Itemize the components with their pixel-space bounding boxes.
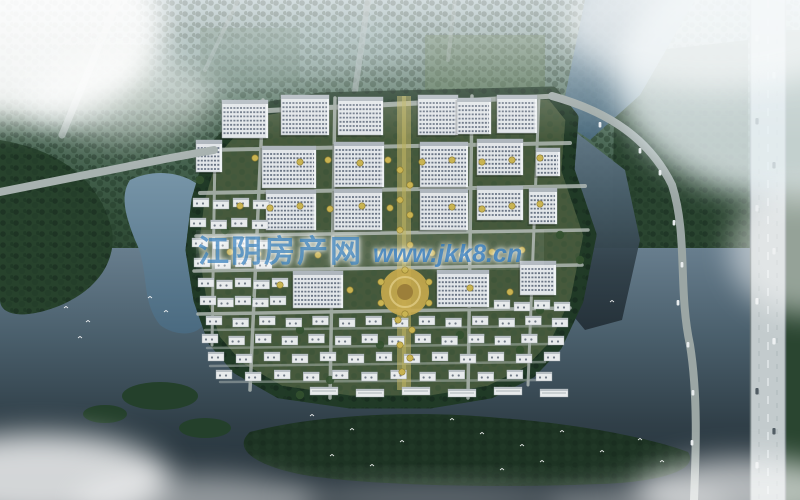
golden-tree	[537, 155, 543, 161]
low-flat-building	[448, 389, 476, 397]
golden-tree	[397, 167, 403, 173]
car	[691, 440, 694, 446]
residential-tower	[419, 142, 469, 189]
golden-tree	[267, 205, 273, 211]
golden-tree	[327, 206, 333, 212]
villa-rowhouse	[208, 352, 224, 361]
villa-rowhouse	[274, 370, 290, 379]
green-tree	[296, 391, 304, 399]
golden-tree	[297, 159, 303, 165]
villa-rowhouse	[468, 334, 484, 343]
villa-rowhouse	[303, 372, 319, 381]
villa-rowhouse	[554, 302, 570, 311]
villa-rowhouse	[548, 336, 564, 345]
car	[681, 262, 684, 268]
villa-rowhouse	[200, 296, 216, 305]
golden-tree	[385, 157, 391, 163]
villa-rowhouse	[507, 370, 523, 379]
golden-tree	[426, 300, 432, 306]
green-tree	[576, 256, 584, 264]
villa-rowhouse	[348, 354, 364, 363]
golden-tree	[347, 287, 353, 293]
villa-rowhouse	[213, 200, 229, 209]
golden-tree	[397, 342, 403, 348]
plaza-emblem	[397, 284, 413, 300]
small-island	[179, 418, 231, 438]
villa-rowhouse	[312, 316, 328, 325]
golden-tree	[479, 159, 485, 165]
car	[692, 390, 695, 396]
golden-tree	[378, 300, 384, 306]
golden-tree	[325, 157, 331, 163]
villa-rowhouse	[521, 334, 537, 343]
residential-tower	[292, 271, 344, 310]
villa-rowhouse	[514, 302, 530, 311]
golden-tree	[378, 279, 384, 285]
villa-rowhouse	[252, 220, 268, 229]
residential-tower	[476, 139, 524, 177]
villa-rowhouse	[420, 372, 436, 381]
villa-rowhouse	[460, 354, 476, 363]
golden-tree	[357, 160, 363, 166]
villa-rowhouse	[495, 336, 511, 345]
golden-tree	[449, 157, 455, 163]
villa-rowhouse	[259, 316, 275, 325]
villa-rowhouse	[552, 318, 568, 327]
villa-rowhouse	[233, 318, 249, 327]
villa-rowhouse	[472, 316, 488, 325]
villa-rowhouse	[499, 318, 515, 327]
villa-rowhouse	[236, 354, 252, 363]
villa-rowhouse	[211, 220, 227, 229]
car	[772, 338, 775, 345]
low-flat-building	[356, 389, 384, 397]
watermark-band	[196, 230, 544, 270]
golden-tree	[407, 212, 413, 218]
villa-rowhouse	[255, 334, 271, 343]
golden-tree	[426, 279, 432, 285]
golden-tree	[407, 355, 413, 361]
golden-tree	[387, 205, 393, 211]
villa-rowhouse	[264, 352, 280, 361]
golden-tree	[402, 311, 408, 317]
golden-tree	[237, 203, 243, 209]
golden-tree	[407, 182, 413, 188]
green-tree	[196, 176, 204, 184]
rendering-canvas	[0, 0, 800, 500]
golden-tree	[277, 282, 283, 288]
golden-tree	[359, 203, 365, 209]
villa-rowhouse	[270, 296, 286, 305]
villa-rowhouse	[292, 354, 308, 363]
villa-rowhouse	[478, 372, 494, 381]
low-flat-building	[540, 389, 568, 397]
car	[659, 170, 662, 176]
car	[772, 428, 775, 435]
golden-tree	[449, 204, 455, 210]
green-tree	[556, 231, 564, 239]
villa-rowhouse	[361, 372, 377, 381]
villa-rowhouse	[442, 336, 458, 345]
car	[755, 388, 758, 395]
residential-tower	[419, 189, 469, 232]
villa-rowhouse	[432, 352, 448, 361]
golden-tree	[297, 203, 303, 209]
residential-tower	[265, 190, 317, 232]
villa-rowhouse	[218, 298, 234, 307]
villa-rowhouse	[229, 336, 245, 345]
golden-tree	[537, 201, 543, 207]
small-island	[122, 382, 198, 410]
green-tree	[516, 346, 524, 354]
golden-tree	[419, 159, 425, 165]
villa-rowhouse	[332, 370, 348, 379]
villa-rowhouse	[282, 336, 298, 345]
golden-tree	[409, 327, 415, 333]
villa-rowhouse	[286, 318, 302, 327]
villa-rowhouse	[253, 298, 269, 307]
villa-rowhouse	[235, 296, 251, 305]
villa-rowhouse	[231, 218, 247, 227]
villa-rowhouse	[366, 316, 382, 325]
residential-tower	[261, 146, 317, 190]
golden-tree	[479, 206, 485, 212]
residential-tower	[535, 148, 561, 178]
golden-tree	[252, 155, 258, 161]
car	[677, 300, 680, 306]
villa-rowhouse	[202, 334, 218, 343]
villa-rowhouse	[516, 354, 532, 363]
residential-tower	[476, 186, 524, 222]
villa-rowhouse	[362, 334, 378, 343]
golden-tree	[395, 317, 401, 323]
villa-rowhouse	[254, 280, 270, 289]
villa-rowhouse	[206, 316, 222, 325]
residential-tower	[436, 270, 490, 309]
car	[687, 342, 690, 348]
villa-rowhouse	[415, 334, 431, 343]
residential-tower	[195, 140, 223, 174]
low-flat-building	[402, 387, 430, 395]
villa-rowhouse	[339, 318, 355, 327]
low-flat-building	[494, 387, 522, 395]
golden-tree	[509, 203, 515, 209]
small-island	[83, 405, 127, 423]
villa-rowhouse	[190, 218, 206, 227]
villa-rowhouse	[245, 372, 261, 381]
car	[639, 148, 642, 154]
villa-rowhouse	[525, 316, 541, 325]
villa-rowhouse	[419, 316, 435, 325]
golden-tree	[397, 197, 403, 203]
villa-rowhouse	[308, 334, 324, 343]
villa-rowhouse	[536, 372, 552, 381]
villa-rowhouse	[534, 300, 550, 309]
villa-rowhouse	[217, 280, 233, 289]
villa-rowhouse	[235, 278, 251, 287]
villa-rowhouse	[193, 198, 209, 207]
golden-tree	[467, 285, 473, 291]
villa-rowhouse	[198, 278, 214, 287]
aerial-rendering-image: 江阴房产网 www.jkk8.cn	[0, 0, 800, 500]
villa-rowhouse	[488, 352, 504, 361]
residential-tower	[528, 188, 558, 226]
villa-rowhouse	[216, 370, 232, 379]
car	[673, 220, 676, 226]
golden-tree	[399, 369, 405, 375]
villa-rowhouse	[446, 318, 462, 327]
low-flat-building	[310, 387, 338, 395]
villa-rowhouse	[494, 300, 510, 309]
villa-rowhouse	[320, 352, 336, 361]
villa-rowhouse	[544, 352, 560, 361]
residential-tower	[333, 189, 383, 232]
villa-rowhouse	[376, 352, 392, 361]
golden-tree	[509, 157, 515, 163]
villa-rowhouse	[449, 370, 465, 379]
golden-tree	[507, 289, 513, 295]
villa-rowhouse	[335, 336, 351, 345]
